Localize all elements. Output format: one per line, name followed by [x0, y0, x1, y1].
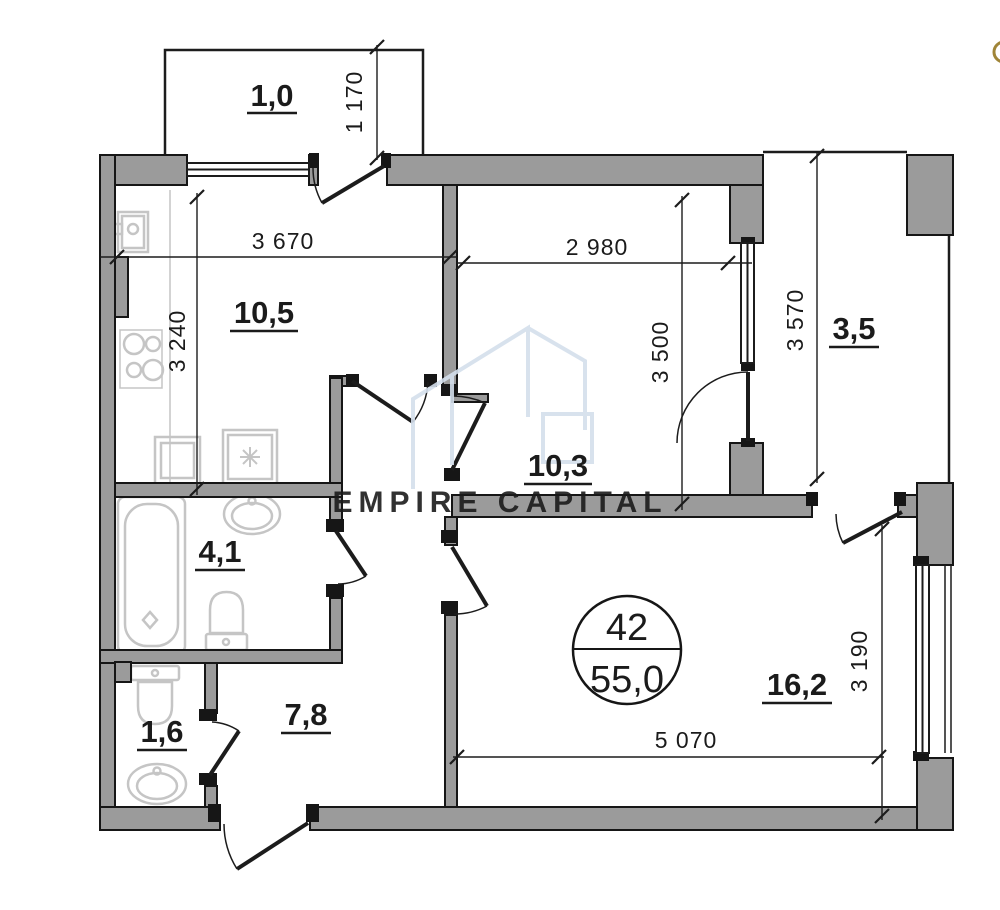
door-post — [326, 519, 344, 532]
cabinet-icon — [155, 437, 200, 484]
badge-total-area: 55,0 — [590, 659, 664, 701]
bathtub-icon — [118, 497, 185, 653]
entrance-door — [224, 823, 308, 869]
room-label-hallway: 7,8 — [284, 697, 327, 732]
door-post — [894, 492, 906, 506]
bedroom-door — [452, 396, 485, 470]
floor-plan: EMPIRE CAPITAL 3 670 2 980 5 070 1 170 3… — [0, 0, 1000, 910]
wall-segment — [330, 598, 342, 653]
kitchen-sink-icon — [114, 212, 148, 252]
living-room-window — [916, 565, 951, 753]
wall-segment — [100, 807, 220, 830]
door-post — [309, 153, 319, 168]
dim-label-3190: 3 190 — [846, 630, 872, 693]
wc-door — [210, 722, 239, 775]
wall-segment — [387, 155, 763, 185]
wall-segment — [443, 185, 457, 393]
room-label-balcony-right: 3,5 — [832, 311, 875, 346]
watermark: EMPIRE CAPITAL — [332, 328, 667, 519]
balcony-top-outline — [165, 50, 423, 157]
wall-segment — [907, 155, 953, 235]
kitchen-door — [352, 381, 428, 422]
wall-segment — [310, 807, 953, 830]
watermark-brand: EMPIRE CAPITAL — [332, 486, 667, 519]
balcony-top-door — [313, 166, 384, 203]
wall-segment — [205, 663, 217, 713]
washing-machine-icon — [223, 430, 277, 484]
dim-label-5070: 5 070 — [655, 727, 718, 753]
door-post — [441, 601, 458, 614]
door-post — [199, 709, 217, 721]
bedroom-balcony-door — [677, 372, 748, 443]
living-room-balcony-door — [836, 512, 902, 543]
door-post — [441, 530, 458, 543]
wall-segment — [115, 483, 342, 497]
bathroom-sink-icon — [224, 494, 280, 534]
balcony-outlines — [165, 50, 949, 483]
bathroom-toilet-icon — [206, 592, 247, 650]
room-label-balcony-top: 1,0 — [250, 78, 293, 113]
door-post — [208, 804, 221, 822]
dim-label-3240: 3 240 — [164, 310, 190, 373]
wall-segment — [730, 185, 763, 243]
wall-segment — [115, 257, 128, 317]
dim-label-2980: 2 980 — [566, 234, 629, 260]
room-label-kitchen: 10,5 — [234, 295, 294, 330]
wc-sink-icon — [128, 764, 186, 804]
apartment-badge: 42 55,0 — [573, 596, 681, 704]
wall-segment — [330, 378, 342, 497]
door-post — [326, 584, 344, 597]
room-label-bedroom: 10,3 — [528, 448, 588, 483]
room-label-living-room: 16,2 — [767, 667, 827, 702]
bathroom-door — [336, 531, 366, 584]
badge-apartment-number: 42 — [606, 607, 648, 649]
room-label-wc: 1,6 — [140, 714, 183, 749]
floor-plan-drawing: EMPIRE CAPITAL 3 670 2 980 5 070 1 170 3… — [0, 0, 1000, 910]
door-post — [199, 773, 217, 785]
room-label-bathroom: 4,1 — [198, 534, 241, 569]
dim-label-3670: 3 670 — [252, 228, 315, 254]
wall-segment — [205, 786, 217, 807]
kitchen-window — [187, 163, 309, 176]
stove-icon — [120, 330, 163, 388]
dim-label-3570: 3 570 — [782, 289, 808, 352]
dim-label-3500: 3 500 — [647, 321, 673, 384]
door-post — [441, 384, 457, 396]
door-post — [306, 804, 319, 822]
dim-label-1170: 1 170 — [341, 71, 367, 134]
wall-segment — [917, 483, 953, 565]
wall-segment — [115, 662, 131, 682]
wall-segment — [100, 650, 342, 663]
wall-segment — [917, 758, 953, 830]
door-post — [806, 492, 818, 506]
accent-dot — [994, 42, 1000, 62]
wall-segment — [100, 155, 115, 830]
bedroom-window — [741, 243, 754, 363]
wall-segment — [445, 615, 457, 807]
